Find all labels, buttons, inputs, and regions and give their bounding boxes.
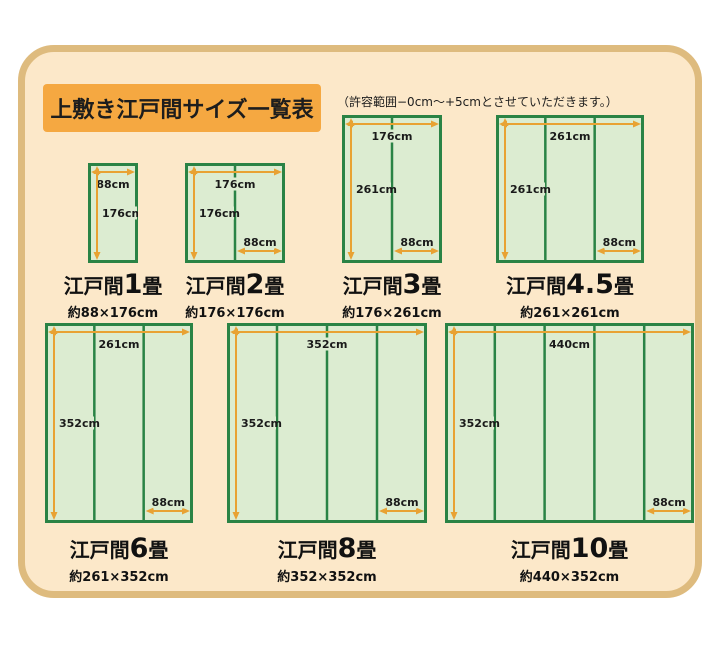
width-label: 440cm bbox=[549, 338, 590, 351]
cap-suffix: 畳 bbox=[148, 538, 168, 562]
caption-size-name: 江戸間3畳 bbox=[342, 269, 441, 301]
width-label: 176cm bbox=[372, 130, 413, 143]
cap-prefix: 江戸間 bbox=[70, 538, 130, 562]
mat-drawing: 352cm352cm88cm bbox=[227, 323, 427, 523]
mat-drawing: 176cm261cm88cm bbox=[342, 115, 442, 263]
mat-drawing: 261cm261cm88cm bbox=[496, 115, 644, 263]
cap-suffix: 畳 bbox=[264, 274, 284, 298]
diagram-caption: 江戸間1畳約88×176cm bbox=[64, 269, 163, 321]
tolerance-note: （許容範囲−0cm～+5cmとさせていただきます。） bbox=[337, 93, 618, 110]
height-label: 352cm bbox=[459, 417, 500, 430]
width-label: 261cm bbox=[99, 338, 140, 351]
diagram-caption: 江戸間10畳約440×352cm bbox=[511, 533, 629, 585]
caption-dims: 約88×176cm bbox=[64, 302, 163, 321]
caption-dims: 約261×352cm bbox=[69, 566, 168, 585]
cap-suffix: 畳 bbox=[421, 274, 441, 298]
diagram-edoma-10: 440cm352cm88cm江戸間10畳約440×352cm bbox=[445, 323, 694, 523]
width-label: 88cm bbox=[96, 178, 129, 191]
caption-dims: 約261×261cm bbox=[506, 302, 634, 321]
height-label: 176cm bbox=[102, 207, 138, 220]
height-label: 352cm bbox=[241, 417, 282, 430]
height-label: 261cm bbox=[510, 183, 551, 196]
strip-label: 88cm bbox=[243, 236, 276, 249]
cap-num: 8 bbox=[338, 533, 357, 564]
diagram-caption: 江戸間8畳約352×352cm bbox=[277, 533, 376, 585]
page: 上敷き江戸間サイズ一覧表 （許容範囲−0cm～+5cmとさせていただきます。） … bbox=[0, 0, 720, 645]
cap-prefix: 江戸間 bbox=[506, 274, 566, 298]
cap-suffix: 畳 bbox=[142, 274, 162, 298]
cap-prefix: 江戸間 bbox=[343, 274, 403, 298]
cap-suffix: 畳 bbox=[608, 538, 628, 562]
cap-prefix: 江戸間 bbox=[64, 274, 124, 298]
strip-label: 88cm bbox=[400, 236, 433, 249]
diagram-edoma-8: 352cm352cm88cm江戸間8畳約352×352cm bbox=[227, 323, 427, 523]
cap-num: 2 bbox=[246, 269, 265, 300]
strip-label: 88cm bbox=[385, 496, 418, 509]
title-box: 上敷き江戸間サイズ一覧表 bbox=[43, 84, 321, 132]
caption-size-name: 江戸間1畳 bbox=[64, 269, 163, 301]
cap-num: 1 bbox=[124, 269, 143, 300]
cap-num: 6 bbox=[130, 533, 149, 564]
diagram-edoma-4_5: 261cm261cm88cm江戸間4.5畳約261×261cm bbox=[496, 115, 644, 263]
mat-drawing: 176cm176cm88cm bbox=[185, 163, 285, 263]
caption-dims: 約440×352cm bbox=[511, 566, 629, 585]
cap-prefix: 江戸間 bbox=[278, 538, 338, 562]
caption-size-name: 江戸間10畳 bbox=[511, 533, 629, 565]
strip-label: 88cm bbox=[152, 496, 185, 509]
cap-num: 4.5 bbox=[566, 269, 614, 300]
strip-label: 88cm bbox=[652, 496, 685, 509]
mat-drawing: 88cm176cm bbox=[88, 163, 138, 263]
caption-size-name: 江戸間6畳 bbox=[69, 533, 168, 565]
mat-drawing: 261cm352cm88cm bbox=[45, 323, 193, 523]
cap-num: 10 bbox=[571, 533, 609, 564]
width-label: 352cm bbox=[307, 338, 348, 351]
cap-prefix: 江戸間 bbox=[186, 274, 246, 298]
caption-size-name: 江戸間8畳 bbox=[277, 533, 376, 565]
page-title: 上敷き江戸間サイズ一覧表 bbox=[50, 92, 313, 124]
height-label: 261cm bbox=[356, 183, 397, 196]
caption-dims: 約352×352cm bbox=[277, 566, 376, 585]
cap-suffix: 畳 bbox=[356, 538, 376, 562]
cap-num: 3 bbox=[403, 269, 422, 300]
cap-suffix: 畳 bbox=[614, 274, 634, 298]
height-label: 176cm bbox=[199, 207, 240, 220]
height-label: 352cm bbox=[59, 417, 100, 430]
cap-prefix: 江戸間 bbox=[511, 538, 571, 562]
diagram-edoma-1: 88cm176cm江戸間1畳約88×176cm bbox=[88, 163, 138, 263]
strip-label: 88cm bbox=[603, 236, 636, 249]
caption-size-name: 江戸間2畳 bbox=[185, 269, 284, 301]
diagram-edoma-3: 176cm261cm88cm江戸間3畳約176×261cm bbox=[342, 115, 442, 263]
diagram-caption: 江戸間2畳約176×176cm bbox=[185, 269, 284, 321]
caption-size-name: 江戸間4.5畳 bbox=[506, 269, 634, 301]
width-label: 261cm bbox=[550, 130, 591, 143]
diagram-caption: 江戸間6畳約261×352cm bbox=[69, 533, 168, 585]
width-label: 176cm bbox=[215, 178, 256, 191]
diagram-edoma-2: 176cm176cm88cm江戸間2畳約176×176cm bbox=[185, 163, 285, 263]
caption-dims: 約176×261cm bbox=[342, 302, 441, 321]
mat-drawing: 440cm352cm88cm bbox=[445, 323, 694, 523]
diagram-edoma-6: 261cm352cm88cm江戸間6畳約261×352cm bbox=[45, 323, 193, 523]
caption-dims: 約176×176cm bbox=[185, 302, 284, 321]
diagram-caption: 江戸間3畳約176×261cm bbox=[342, 269, 441, 321]
diagram-caption: 江戸間4.5畳約261×261cm bbox=[506, 269, 634, 321]
